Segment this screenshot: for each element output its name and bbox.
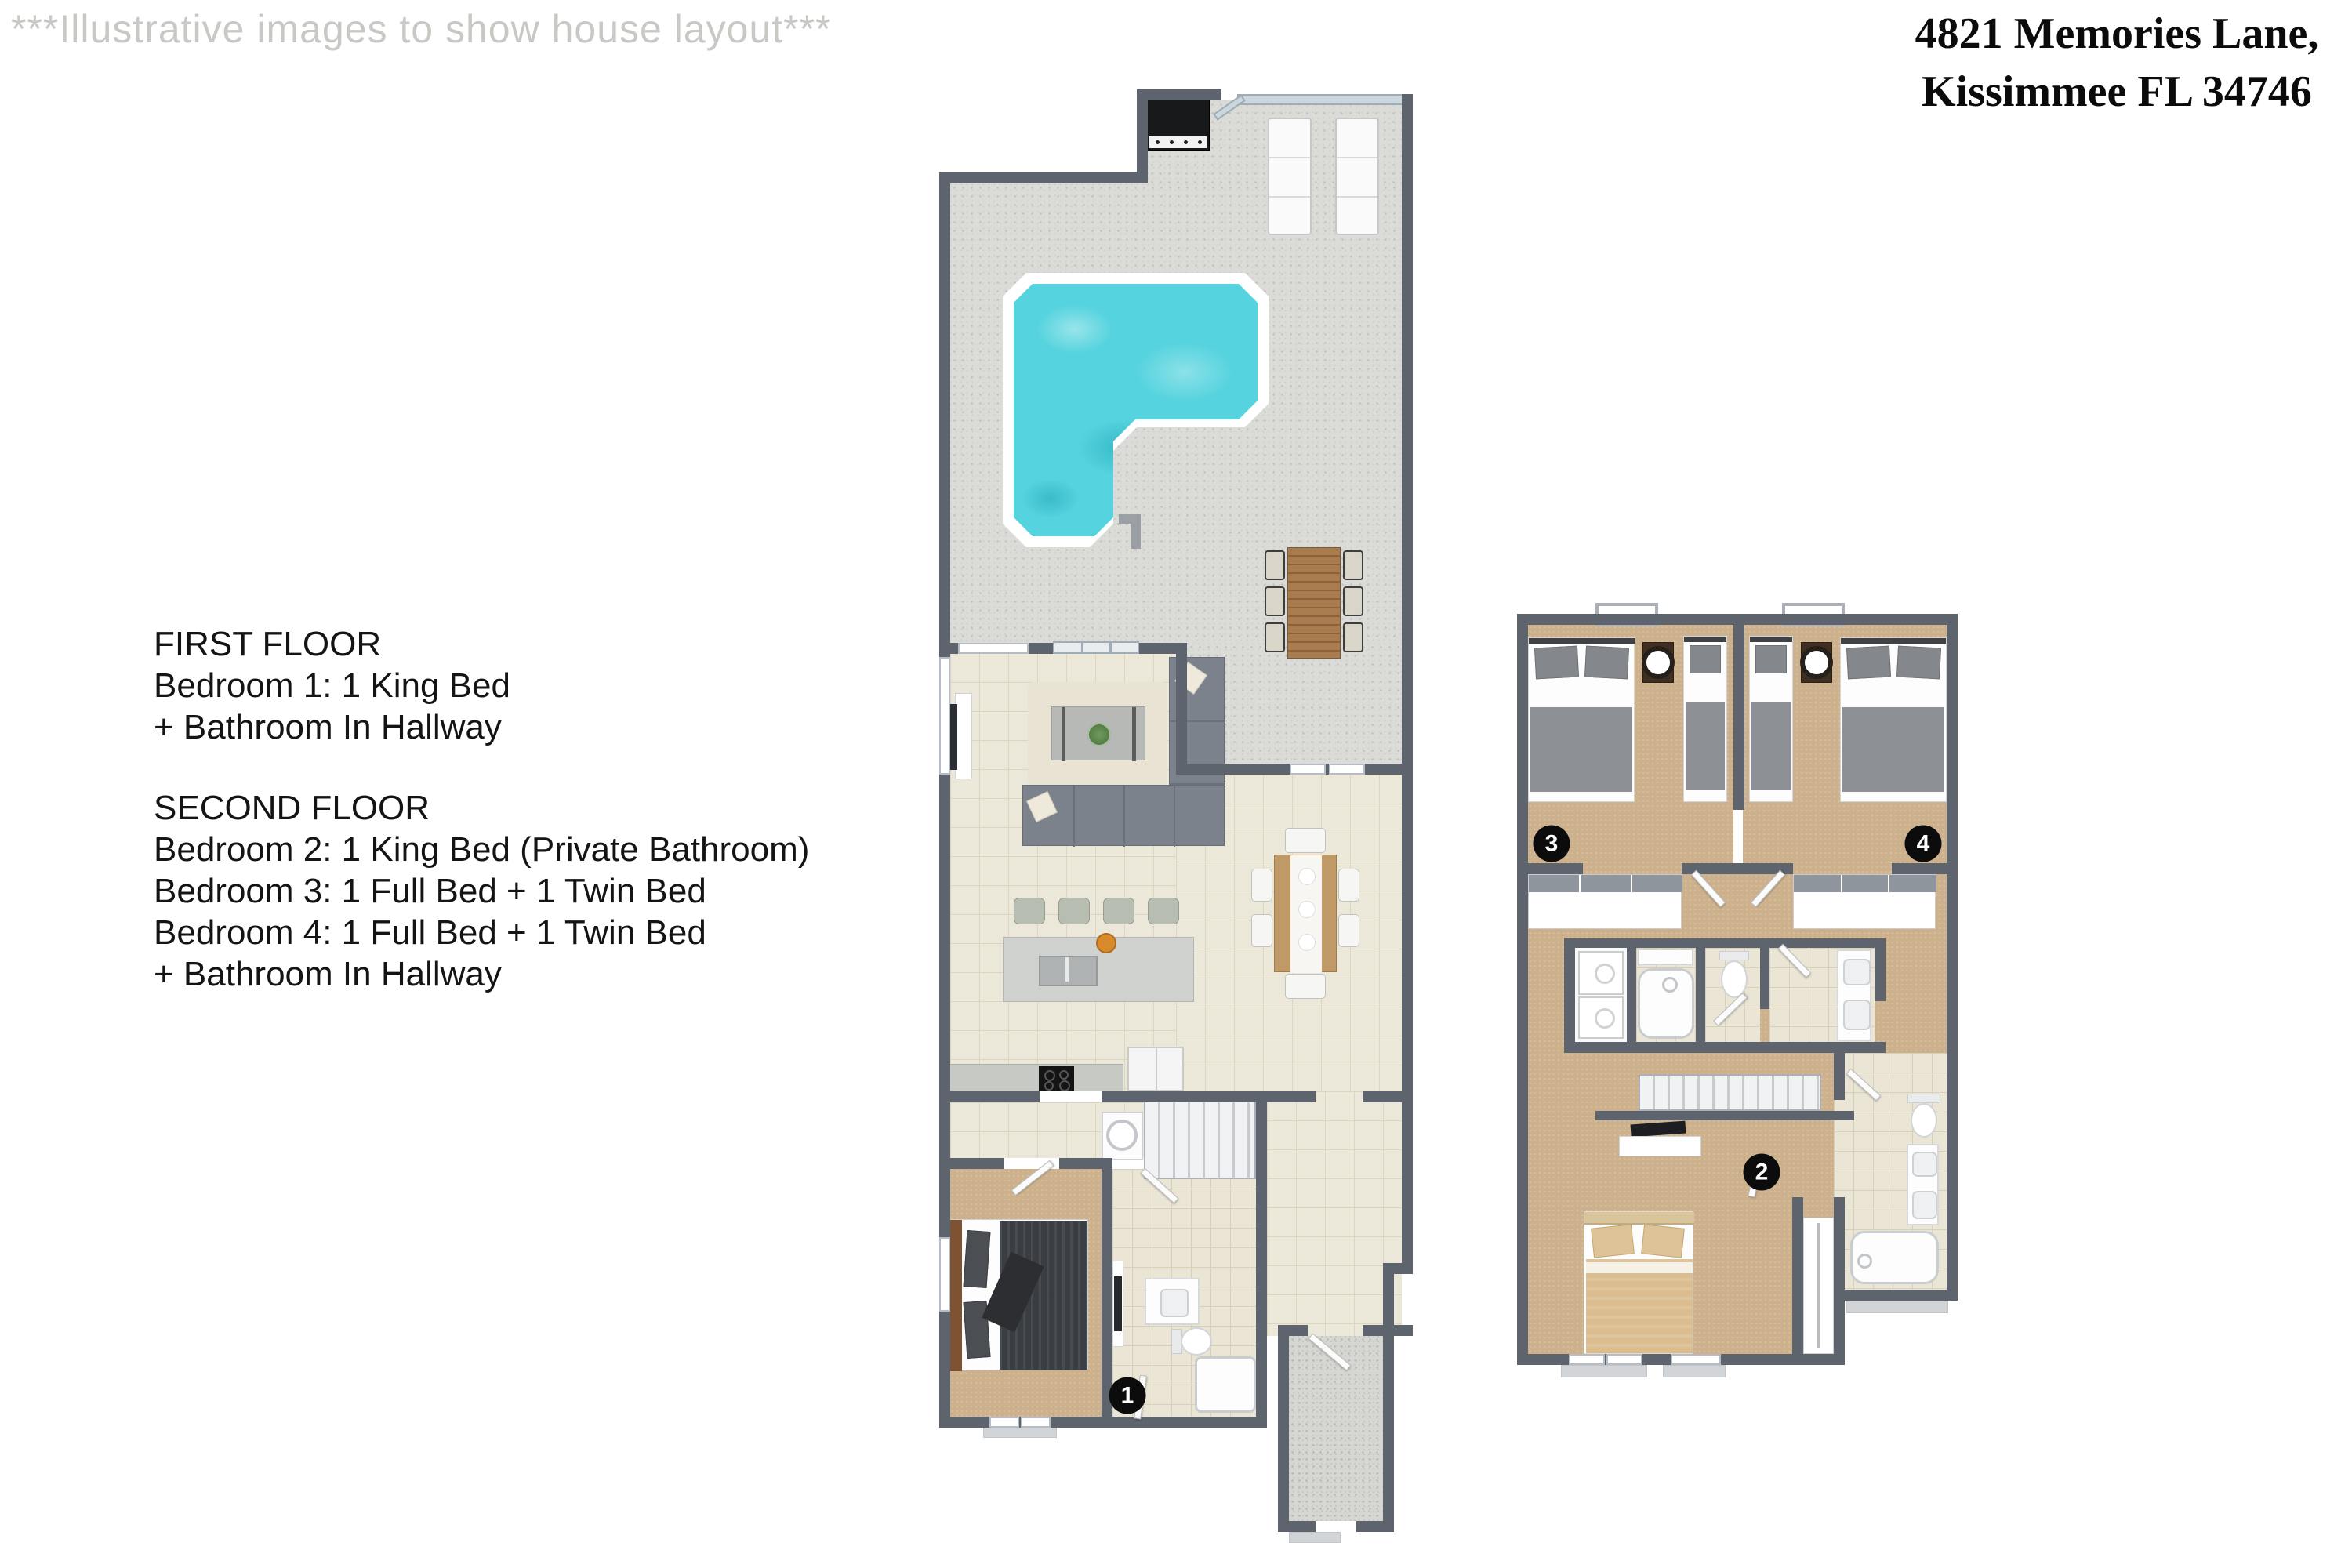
- tv-screen: [950, 704, 957, 770]
- wall: [1564, 938, 1886, 948]
- wall: [1356, 1521, 1394, 1532]
- bedroom3-closet: [1528, 874, 1682, 929]
- bar-stool: [1058, 898, 1090, 924]
- wall: [1875, 938, 1886, 1001]
- lamp: [1642, 646, 1675, 679]
- second-floor-line: + Bathroom In Hallway: [154, 953, 809, 995]
- wall: [1760, 938, 1769, 1009]
- dining-table: [1274, 855, 1337, 972]
- refrigerator: [1127, 1047, 1184, 1091]
- bathroom1-shower: [1195, 1356, 1256, 1413]
- wall: [1278, 1521, 1316, 1532]
- wall: [1137, 89, 1221, 100]
- outdoor-dining-table: [1287, 547, 1341, 659]
- watermark-text: ***Illustrative images to show house lay…: [11, 6, 832, 52]
- bedroom1-marker: 1: [1109, 1377, 1146, 1414]
- floor-info-block: FIRST FLOOR Bedroom 1: 1 King Bed + Bath…: [154, 623, 809, 995]
- wall: [1517, 614, 1958, 625]
- bathroom1-toilet-bowl: [1181, 1327, 1212, 1356]
- info-spacer: [154, 748, 809, 787]
- headboard: [1584, 1212, 1694, 1225]
- window-sill: [1663, 1365, 1726, 1377]
- bedroom3-marker: 3: [1534, 826, 1570, 862]
- wall: [1564, 938, 1575, 1053]
- bedroom2-marker: 2: [1744, 1154, 1780, 1191]
- staircase: [1639, 1074, 1821, 1111]
- wall: [1139, 643, 1179, 654]
- fruit-bowl: [1096, 933, 1116, 953]
- glass-railing: [1237, 94, 1413, 105]
- wall: [1627, 938, 1636, 1053]
- sun-lounger: [1268, 118, 1312, 235]
- property-address: 4821 Memories Lane, Kissimmee FL 34746: [1827, 5, 2352, 121]
- dining-chair: [1338, 914, 1359, 947]
- wall: [1792, 1197, 1803, 1365]
- bar-stool: [1103, 898, 1134, 924]
- bedroom4-full-bed: [1840, 637, 1947, 802]
- sliding-door: [1053, 641, 1139, 654]
- bedroom2-tv-console: [1619, 1136, 1701, 1156]
- window-sill: [983, 1428, 1057, 1438]
- wall: [1892, 863, 1947, 874]
- kitchen-island: [1003, 937, 1194, 1002]
- tv-console: [955, 693, 972, 779]
- bedroom4-marker: 4: [1905, 826, 1942, 862]
- window: [1021, 1417, 1051, 1428]
- bedroom4-marker-number: 4: [1917, 830, 1930, 857]
- hall-bathtub: [1638, 968, 1694, 1039]
- stair-wall: [1595, 1111, 1854, 1120]
- first-floor-line: + Bathroom In Hallway: [154, 706, 809, 748]
- window: [989, 1417, 1019, 1428]
- dining-chair: [1338, 869, 1359, 902]
- second-floor-line: Bedroom 3: 1 Full Bed + 1 Twin Bed: [154, 870, 809, 912]
- cooktop: [1039, 1066, 1074, 1091]
- window: [1569, 1354, 1605, 1365]
- window: [1606, 1354, 1642, 1365]
- wall: [1363, 1091, 1413, 1102]
- dining-chair: [1285, 828, 1326, 853]
- wall: [1947, 614, 1958, 1301]
- kitchen-counter: [945, 1064, 1123, 1091]
- swimming-pool: [1003, 273, 1269, 547]
- bedroom2-king-bed: [1584, 1211, 1693, 1354]
- porch-step: [1289, 1532, 1341, 1543]
- sun-lounger: [1335, 118, 1379, 235]
- wall: [1102, 1091, 1316, 1102]
- wall: [1176, 643, 1187, 775]
- window: [939, 1237, 950, 1312]
- floorplan-sheet: ***Illustrative images to show house lay…: [0, 0, 2352, 1568]
- window-sill: [1561, 1365, 1647, 1377]
- bedroom2-walkin-closet: [1803, 1218, 1834, 1354]
- wall: [1834, 1197, 1845, 1365]
- wall: [939, 1091, 1040, 1102]
- stacked-dryer: [1578, 996, 1624, 1039]
- outdoor-chair: [1265, 622, 1285, 652]
- bedroom3-twin-bed: [1683, 636, 1727, 802]
- wall: [1834, 1290, 1958, 1301]
- hall-toilet-tank: [1719, 951, 1749, 960]
- first-floor-line: Bedroom 1: 1 King Bed: [154, 665, 809, 706]
- outdoor-chair: [1343, 550, 1363, 580]
- bath-cabinet: [1638, 949, 1693, 965]
- hall-toilet: [1721, 960, 1748, 998]
- bathroom1-vanity: [1145, 1278, 1200, 1325]
- second-floor-title: SECOND FLOOR: [154, 787, 809, 829]
- entry-hall-floor: [1267, 1091, 1402, 1336]
- bedroom3-marker-number: 3: [1545, 830, 1559, 857]
- dining-chair: [1251, 914, 1272, 947]
- wall: [1137, 89, 1148, 183]
- dining-chair: [1285, 974, 1326, 999]
- ensuite-toilet-tank: [1907, 1094, 1940, 1103]
- bar-stool: [1148, 898, 1179, 924]
- second-floor-line: Bedroom 2: 1 King Bed (Private Bathroom): [154, 829, 809, 870]
- wall: [1256, 1102, 1267, 1428]
- window: [1329, 764, 1365, 775]
- wall: [1102, 1158, 1112, 1417]
- bar-stool: [1014, 898, 1045, 924]
- wall: [1528, 863, 1583, 874]
- wall: [939, 1158, 1004, 1169]
- window-sill: [1846, 1301, 1948, 1313]
- wall: [1278, 1331, 1289, 1532]
- ensuite-bathtub: [1850, 1231, 1939, 1284]
- wall: [1363, 1325, 1413, 1336]
- stacked-washer: [1578, 951, 1624, 995]
- bedroom4-closet: [1793, 874, 1936, 929]
- pool-ladder: [1131, 514, 1141, 549]
- second-floor-line: Bedroom 4: 1 Full Bed + 1 Twin Bed: [154, 912, 809, 953]
- wall: [1733, 625, 1744, 810]
- pool-water: [1014, 284, 1258, 536]
- outdoor-chair: [1343, 622, 1363, 652]
- outdoor-chair: [1265, 586, 1285, 616]
- bbq-grill: [1145, 99, 1210, 151]
- wall: [1383, 1263, 1394, 1532]
- first-floor-plan: 1: [939, 85, 1413, 1551]
- bedroom4-twin-bed: [1749, 636, 1793, 802]
- bedroom1-king-bed: [949, 1219, 1088, 1370]
- wall: [1517, 614, 1528, 1365]
- wall: [1564, 1042, 1886, 1053]
- window: [958, 643, 1029, 654]
- second-floor-plan: 2 3 4: [1517, 614, 1958, 1394]
- address-line-2: Kissimmee FL 34746: [1827, 63, 2352, 121]
- outdoor-chair: [1265, 550, 1285, 580]
- ensuite-toilet: [1911, 1103, 1937, 1138]
- lamp: [1800, 646, 1833, 679]
- staircase: [1144, 1094, 1256, 1179]
- coffee-table: [1051, 706, 1145, 760]
- wall: [939, 172, 1148, 183]
- sectional-sofa: [1022, 785, 1225, 846]
- island-sink: [1039, 956, 1098, 986]
- bedroom3-full-bed: [1528, 637, 1635, 802]
- wall: [1696, 938, 1705, 1053]
- window: [1290, 764, 1326, 775]
- hall-vanity: [1837, 949, 1871, 1041]
- bedroom2-marker-number: 2: [1755, 1159, 1769, 1185]
- plant: [1087, 723, 1111, 746]
- window: [1671, 1354, 1721, 1365]
- headboard: [949, 1220, 962, 1371]
- ensuite-double-vanity: [1907, 1144, 1939, 1225]
- washer: [1106, 1120, 1138, 1151]
- dining-chair: [1251, 869, 1272, 902]
- duvet: [1586, 1259, 1693, 1353]
- outdoor-chair: [1343, 586, 1363, 616]
- entry-porch-floor: [1289, 1336, 1383, 1521]
- bedroom1-marker-number: 1: [1121, 1382, 1134, 1409]
- window: [939, 657, 950, 775]
- bedroom1-tv: [1114, 1276, 1122, 1331]
- address-line-1: 4821 Memories Lane,: [1827, 5, 2352, 63]
- wall: [1278, 1325, 1308, 1336]
- first-floor-title: FIRST FLOOR: [154, 623, 809, 665]
- wall: [1834, 1053, 1845, 1100]
